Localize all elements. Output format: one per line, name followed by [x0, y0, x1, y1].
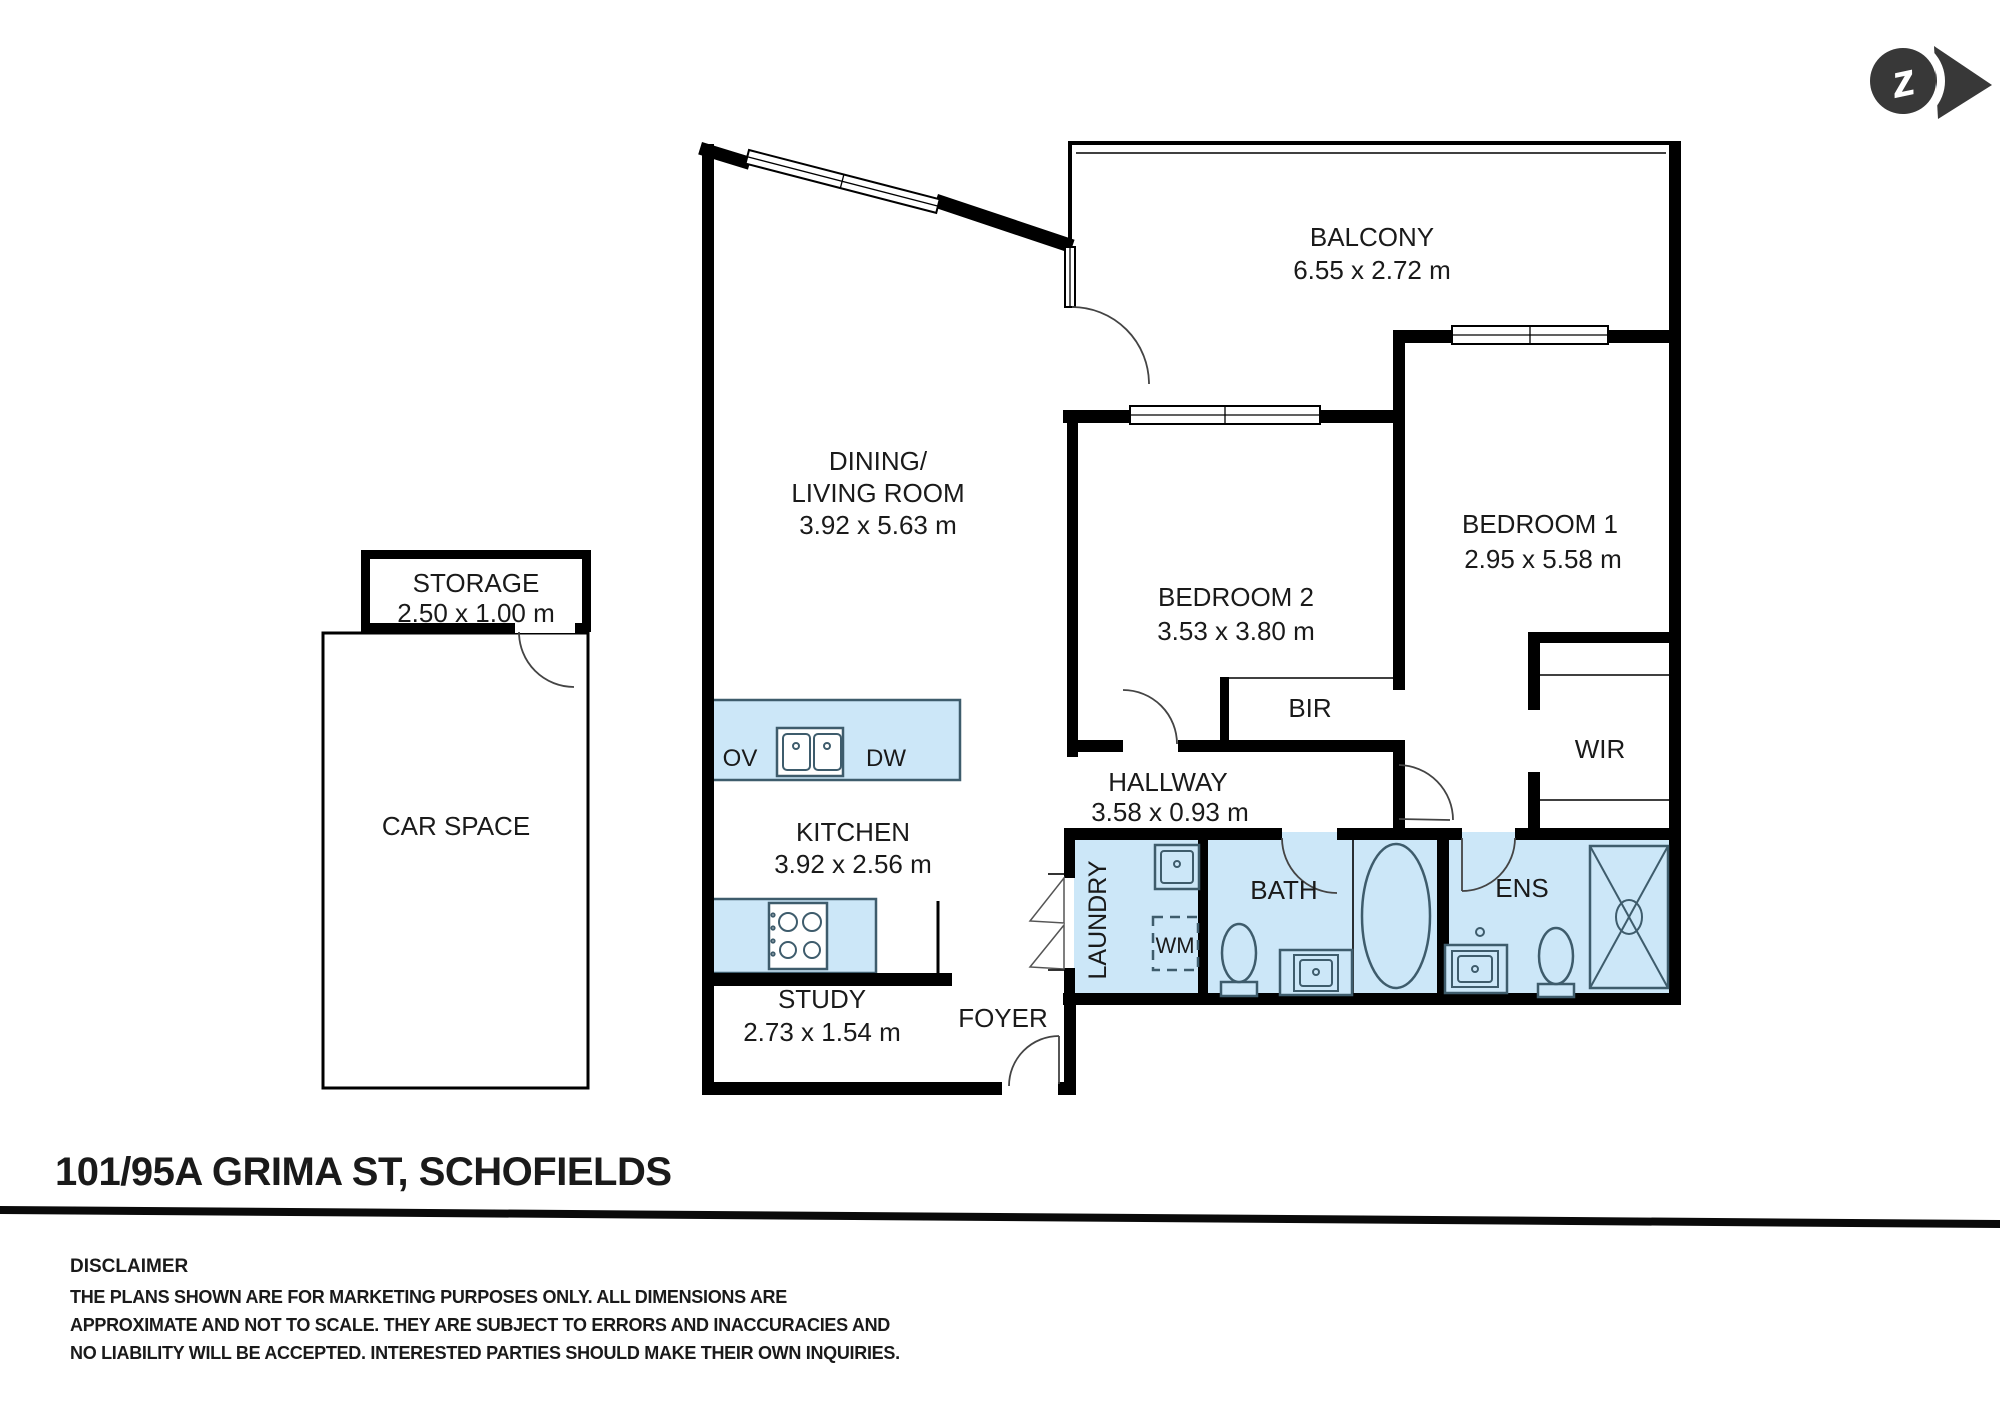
shower — [1590, 846, 1668, 988]
wall-diagonal — [934, 194, 1075, 253]
fixture-label-oven: OV — [723, 745, 758, 772]
room-dims-storage: 2.50 x 1.00 m — [397, 598, 555, 628]
bathtub — [1362, 844, 1430, 988]
room-dims-kitchen: 3.92 x 2.56 m — [774, 849, 932, 879]
wall-hall-top-a — [1067, 740, 1123, 752]
wall-laundry-left-a — [1064, 828, 1075, 878]
disclaimer-line-2: APPROXIMATE AND NOT TO SCALE. THEY ARE S… — [70, 1315, 890, 1335]
window-bedroom2 — [1130, 406, 1320, 424]
door-arc-bedroom1 — [1399, 765, 1453, 820]
floorplan-page: DINING/ LIVING ROOM 3.92 x 5.63 m BALCON… — [0, 0, 2000, 1414]
divider-line — [0, 1206, 2000, 1228]
room-label-kitchen: KITCHEN — [796, 817, 910, 847]
wall-wet-top-b — [1337, 828, 1462, 840]
room-dims-balcony: 6.55 x 2.72 m — [1293, 255, 1451, 285]
door-arc-balcony — [1072, 307, 1149, 384]
ens-toilet — [1538, 928, 1574, 997]
disclaimer-heading: DISCLAIMER — [70, 1256, 189, 1277]
room-label-laundry: LAUNDRY — [1084, 860, 1112, 979]
wall-bed2-left — [1067, 410, 1078, 757]
room-label-ens: ENS — [1495, 873, 1548, 903]
door-arc-storage — [519, 632, 574, 687]
wall-wir-top — [1528, 632, 1669, 643]
room-dims-dining: 3.92 x 5.63 m — [799, 510, 957, 540]
door-arc-bedroom2 — [1123, 690, 1177, 744]
window-balcony-left — [1065, 247, 1075, 307]
wall-bed2-top-b — [1320, 410, 1405, 423]
wall-bottom — [702, 1082, 1002, 1095]
room-label-bedroom1: BEDROOM 1 — [1462, 509, 1618, 539]
room-label-hallway: HALLWAY — [1108, 767, 1227, 797]
wall-balcony-left — [1068, 141, 1072, 247]
door-leaf-bedroom1 — [1399, 819, 1450, 820]
wall-foyer-right — [1064, 1002, 1076, 1090]
fixture-label-dishwasher: DW — [866, 745, 906, 772]
room-label-carspace: CAR SPACE — [382, 811, 530, 841]
wall-right — [1669, 141, 1681, 1005]
bifold-doors-laundry — [1030, 878, 1064, 969]
bath-vanity — [1280, 950, 1352, 995]
kitchen-sink — [777, 728, 843, 776]
room-label-wir: WIR — [1575, 734, 1626, 764]
room-label-storage: STORAGE — [413, 568, 540, 598]
window-dining-diagonal — [745, 150, 939, 213]
fixture-label-wm: WM — [1155, 933, 1194, 958]
door-arc-entry — [1009, 1036, 1059, 1086]
wall-wet-top-a — [1064, 828, 1282, 840]
bath-toilet — [1221, 924, 1257, 996]
page-title: 101/95A GRIMA ST, SCHOFIELDS — [55, 1150, 672, 1194]
disclaimer: DISCLAIMER THE PLANS SHOWN ARE FOR MARKE… — [70, 1256, 900, 1363]
room-label-balcony: BALCONY — [1310, 222, 1434, 252]
room-dims-study: 2.73 x 1.54 m — [743, 1017, 901, 1047]
ens-vanity — [1445, 945, 1507, 993]
wall-bed1-top-b — [1608, 330, 1681, 343]
wall-wir-left-b — [1528, 772, 1540, 840]
laundry-sink — [1155, 845, 1199, 889]
window-bedroom1 — [1452, 326, 1608, 344]
wall-balcony-top — [1068, 141, 1681, 145]
wall-left — [702, 144, 714, 1095]
room-dims-bedroom2: 3.53 x 3.80 m — [1157, 616, 1315, 646]
wall-hall-top-b — [1178, 740, 1405, 752]
wall-bir-left — [1220, 677, 1229, 743]
room-label-study: STUDY — [778, 984, 866, 1014]
room-label-dining-1: DINING/ — [829, 446, 928, 476]
room-label-bath: BATH — [1250, 875, 1317, 905]
wall-wir-left-a — [1528, 632, 1540, 710]
cooktop — [769, 903, 827, 969]
room-label-foyer: FOYER — [958, 1003, 1048, 1033]
wall-wet-bottom — [1063, 993, 1681, 1005]
room-dims-bedroom1: 2.95 x 5.58 m — [1464, 544, 1622, 574]
disclaimer-line-3: NO LIABILITY WILL BE ACCEPTED. INTERESTE… — [70, 1343, 900, 1363]
room-dims-hallway: 3.58 x 0.93 m — [1091, 797, 1249, 827]
carspace-outline — [323, 633, 588, 1088]
room-label-bedroom2: BEDROOM 2 — [1158, 582, 1314, 612]
wall-bed1-left — [1393, 330, 1405, 690]
agency-logo: z — [1865, 43, 1992, 119]
room-label-bir: BIR — [1288, 693, 1331, 723]
windows — [745, 150, 1608, 424]
disclaimer-line-1: THE PLANS SHOWN ARE FOR MARKETING PURPOS… — [70, 1287, 787, 1307]
floorplan-canvas: DINING/ LIVING ROOM 3.92 x 5.63 m BALCON… — [0, 0, 2000, 1414]
room-label-dining-2: LIVING ROOM — [791, 478, 964, 508]
